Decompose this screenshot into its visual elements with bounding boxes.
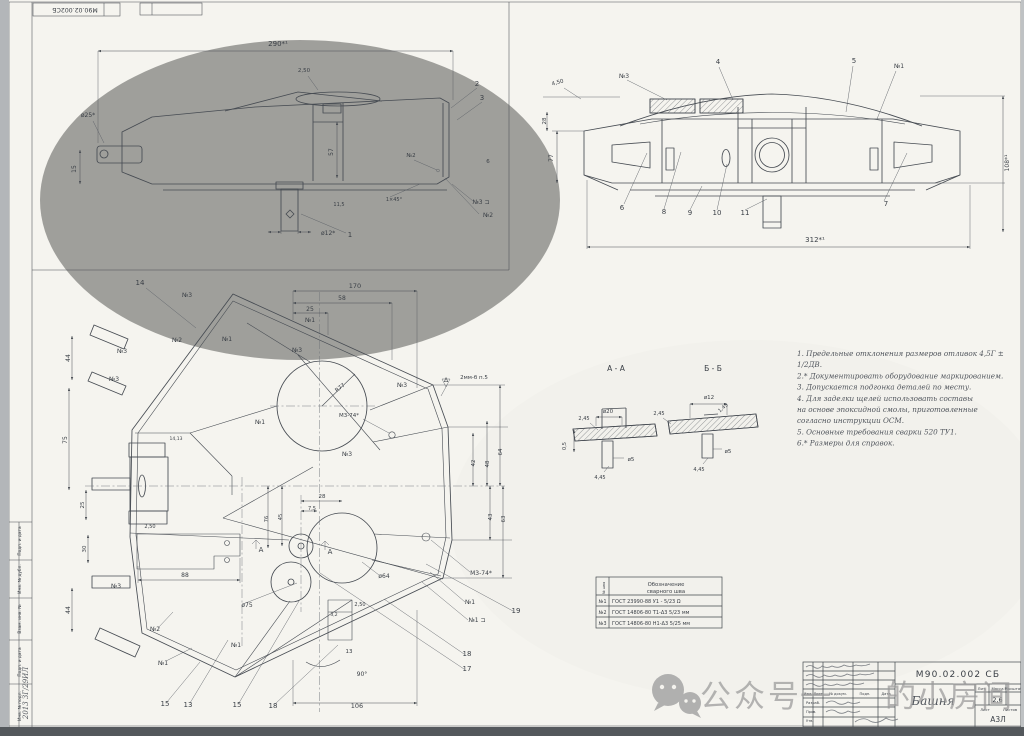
plan-view-label-36: 48 [485,460,491,467]
front-view-label-8: 6 [620,204,625,212]
section-label-6: 0,5 [562,442,568,450]
plan-view-label-11: №1 [255,419,265,426]
section-label-3: 2,45 [578,416,589,422]
section-label-1: Б - Б [704,364,722,373]
plan-view-label-56: 18 [269,702,278,710]
section-label-2: ø20 [603,409,614,415]
plan-view-label-38: 43 [488,513,494,520]
plan-view-label-48: №3 [111,583,121,590]
plan-view-label-39: 63 [501,515,507,522]
plan-view-label-55: 15 [233,701,242,709]
plan-view-label-3: №3 [117,348,127,355]
plan-view-label-47: №1 [231,642,241,649]
weld-row-2-num: №3 [598,621,606,627]
side-view-label-13: №2 [483,212,493,219]
section-label-11: 4,45 [693,467,704,473]
plan-view-label-19: 44 [65,354,72,362]
plan-view-label-50: 3,2 [330,612,337,618]
plan-view-label-51: 13 [346,649,353,655]
front-view-label-1: №3 [619,73,629,80]
note-line-5: на основе эпоксидной смолы, приготовленн… [797,405,978,414]
plan-view-label-22: 30 [82,545,88,552]
plan-view-label-57: 106 [351,702,363,710]
plan-view-label-16: М3-74* [339,413,359,419]
note-line-4: 4. Для заделки щелей использовать состав… [796,394,973,403]
plan-view-label-32: А [259,546,264,554]
front-view-label-7: 108*¹ [1004,154,1011,171]
plan-view-label-54: 13 [184,701,193,709]
side-view-label-1: 2,50 [298,68,311,74]
front-view-label-6: 77 [548,154,555,162]
plan-view-label-31: 45 [278,514,284,520]
plan-view-label-52: 90° [357,671,368,678]
scanned-engineering-drawing: М90.02.002СБ Подп. и датаИнв. № дубл.Вза… [0,0,1024,736]
plan-view-label-18: 14,13 [170,436,183,442]
plan-view-label-23: 44 [65,606,72,614]
plan-view-label-25: 88 [181,572,189,579]
watermark-hidden-char: 一 [800,679,831,715]
plan-view-label-49: №3 [342,451,352,458]
front-view-label-3: 5 [852,57,856,65]
side-view-label-11: №2 [406,153,415,159]
scan-bottom-band [0,727,1024,736]
title-block-label-7: Утв. [806,719,814,723]
plan-view-label-10: №3 [292,347,302,354]
section-label-10: ø5 [725,449,732,455]
plan-view-label-37: 64 [498,448,504,455]
plan-view-label-1: №3 [182,292,192,299]
plan-view-label-43: 18 [463,650,472,658]
front-view-label-11: 10 [713,209,722,217]
side-view-label-12: №3 ⊐ [473,199,490,206]
plan-view-label-42: 19 [512,607,521,615]
drawing-sheet: М90.02.002СБ Подп. и датаИнв. № дубл.Вза… [0,0,1024,736]
section-label-4: ø5 [628,457,635,463]
side-view-label-10: 1 [348,231,352,239]
note-line-2: 2.* Документировать оборудование маркиро… [796,371,1003,380]
side-view-label-4: ø25* [81,112,95,119]
plan-view-label-7: 58 [338,295,346,302]
plan-view-label-44: 17 [463,665,472,673]
format-code: А3Л [990,715,1006,724]
side-view-label-8: 1×45° [386,197,403,203]
section-label-0: А - А [607,364,626,373]
front-view-label-2: 4 [716,58,721,66]
plan-view-label-12: №3 [397,382,407,389]
section-label-5: 4,45 [594,475,605,481]
left-strip-label-0: Подп. и дата [17,526,23,556]
left-strip-label-2: Взам. инв. № [17,604,23,634]
title-block-label-2: № докум. [829,692,847,696]
weld-row-2-designation: ГОСТ 14806-80 Н1-Δ3 5/25 мм [612,621,690,627]
front-view-label-4: №1 [894,63,904,70]
side-view-label-7: 11,5 [333,202,344,208]
front-view-label-13: 7 [884,200,888,208]
weld-row-0-designation: ГОСТ 23990-88 У1 - 5/23 Ω [612,599,681,605]
plan-view-label-20: 75 [62,436,69,444]
plan-view-label-9: №1 [305,317,315,324]
plan-view-label-2: №2 [172,337,182,344]
plan-view-label-24: 2,50 [144,524,155,530]
plan-view-label-4: №3 [109,376,119,383]
side-view-label-3: 3 [480,94,484,102]
note-line-3: 3. Допускается подгонка деталей по месту… [797,383,971,392]
plan-view-label-29: 7,5 [308,506,316,512]
section-label-8: 2,45 [653,411,664,417]
plan-view-label-40: №1 [465,599,475,606]
plan-view-label-30: 76 [264,516,270,522]
plan-view-label-35: 42 [471,460,477,467]
left-strip-label-5: 2013 ЗГ/29ИЛ [22,667,30,720]
watermark-text-suffix: 的小房间 [885,679,1013,715]
left-strip-label-1: Инв. № дубл. [17,564,23,593]
plan-view-label-26: ø75 [241,602,252,609]
plan-view-label-27: ø64 [378,573,389,580]
side-view-label-0: 290*¹ [268,40,288,48]
scan-left-margin [0,0,9,736]
section-label-7: ø12 [704,395,714,401]
plan-view-label-33: А [328,548,333,556]
front-view-label-10: 9 [688,209,692,217]
plan-view-label-14: 2мм-б п.5 [460,375,488,381]
note-line-8: 6.* Размеры для справок. [797,439,895,448]
plan-view-label-41: №1 ⊐ [469,617,486,624]
note-line-6: согласно инструкции ОСМ. [797,416,904,425]
note-line-7: 5. Основные требования сварки 520 ТУ1. [797,427,957,436]
mirrored-doc-number: М90.02.002СБ [52,6,97,13]
weld-table-header-line2: сварного шва [647,589,685,595]
plan-view-label-28: 28 [319,494,326,500]
plan-view-label-46: №1 [158,660,168,667]
side-view-label-14: 6 [486,159,490,165]
plan-view-label-21: 25 [80,501,86,508]
side-view-label-2: 2 [475,80,479,88]
title-block-label-3: Подп. [860,692,871,696]
plan-view-label-8: 25 [306,306,314,313]
watermark-text-prefix: 公众号 [700,679,802,715]
front-view-label-9: 8 [662,208,666,216]
plan-view-label-45: №2 [150,626,160,633]
weld-row-1-num: №2 [598,610,606,616]
weld-table-num-header: № шва [602,582,606,595]
front-view-label-5: 28 [542,117,548,124]
plan-view-label-17: М3-74* [470,570,492,577]
front-view-label-12: 11 [741,209,750,217]
note-line-1: 1/2ДВ. [797,360,822,369]
weld-table-header-line1: Обозначение [648,582,685,588]
note-line-0: 1. Предельные отклонения размеров отливо… [797,349,1004,358]
plan-view-label-0: 14 [136,279,145,287]
side-view-label-6: 57 [328,148,335,156]
front-view-label-14: 312*¹ [805,236,825,244]
plan-view-label-53: 15 [161,700,170,708]
weld-row-0-num: №1 [598,599,606,605]
plan-view-label-34: 2,50 [354,602,365,608]
weld-row-1-designation: ГОСТ 14806-80 Т1-Δ3 5/23 мм [612,610,690,616]
side-view-label-9: ø12* [321,230,335,237]
plan-view-label-6: 170 [349,282,361,290]
side-view-label-5: 15 [71,165,78,173]
plan-view-label-5: №1 [222,336,232,343]
